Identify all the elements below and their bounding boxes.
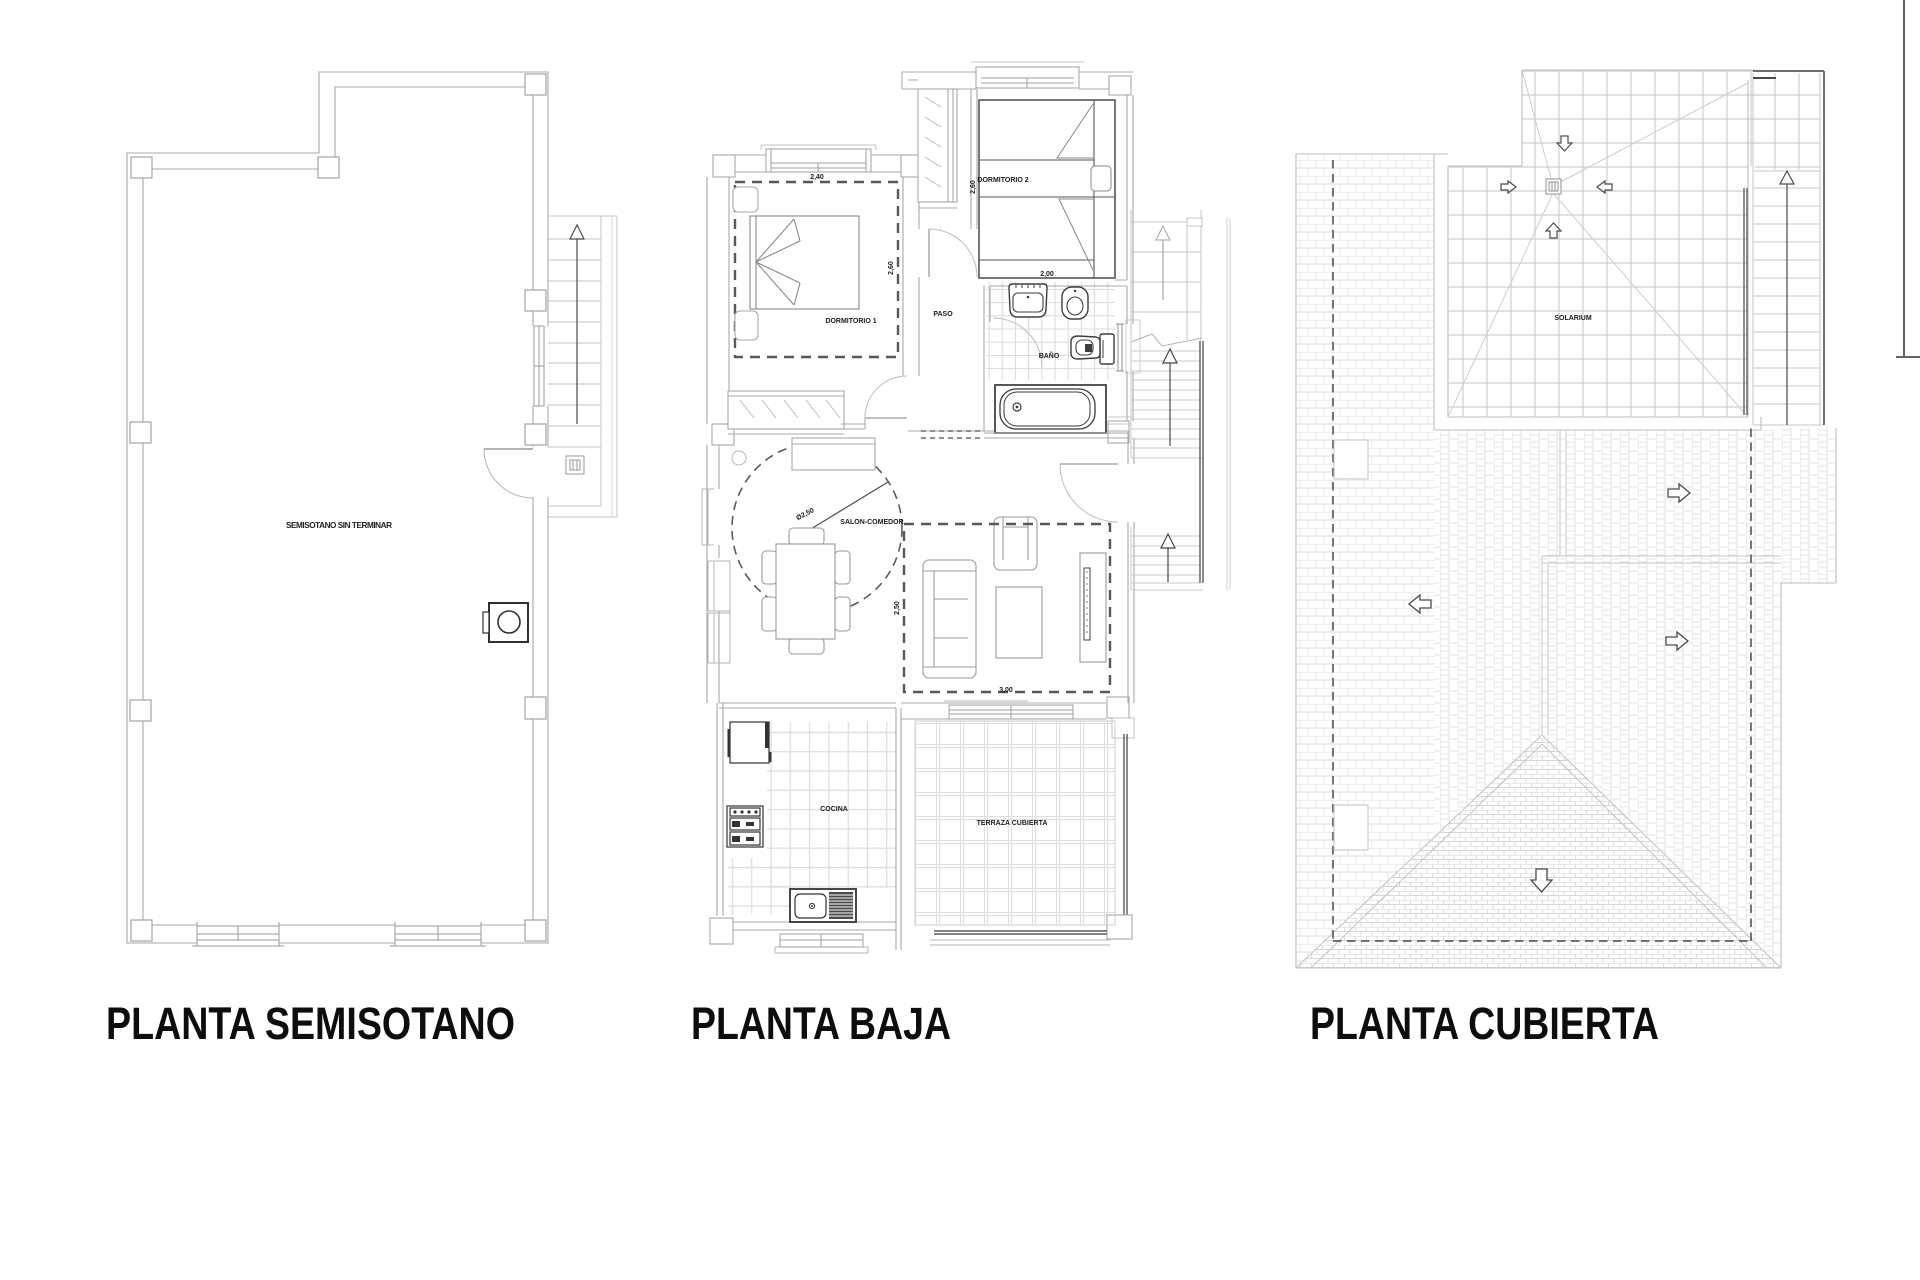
svg-text:2,00: 2,00 xyxy=(1040,271,1054,278)
svg-text:SOLARIUM: SOLARIUM xyxy=(1554,315,1592,322)
svg-text:DORMITORIO 1: DORMITORIO 1 xyxy=(825,318,876,325)
svg-text:DORMITORIO 2: DORMITORIO 2 xyxy=(977,177,1028,184)
svg-text:2,60: 2,60 xyxy=(888,261,895,275)
svg-text:PLANTA CUBIERTA: PLANTA CUBIERTA xyxy=(1310,998,1659,1049)
svg-text:SEMISOTANO SIN TERMINAR: SEMISOTANO SIN TERMINAR xyxy=(286,521,392,530)
svg-text:PASO: PASO xyxy=(933,311,953,318)
svg-text:3,00: 3,00 xyxy=(999,687,1013,694)
svg-text:PLANTA BAJA: PLANTA BAJA xyxy=(691,998,951,1049)
svg-text:COCINA: COCINA xyxy=(820,806,848,813)
svg-text:PLANTA SEMISOTANO: PLANTA SEMISOTANO xyxy=(106,998,515,1049)
svg-text:SALON-COMEDOR: SALON-COMEDOR xyxy=(840,519,903,526)
svg-text:2,50: 2,50 xyxy=(894,601,901,615)
svg-text:2,60: 2,60 xyxy=(970,180,977,194)
svg-text:BAÑO: BAÑO xyxy=(1039,351,1060,360)
svg-text:2,40: 2,40 xyxy=(810,174,824,181)
svg-text:TERRAZA CUBIERTA: TERRAZA CUBIERTA xyxy=(977,820,1048,827)
